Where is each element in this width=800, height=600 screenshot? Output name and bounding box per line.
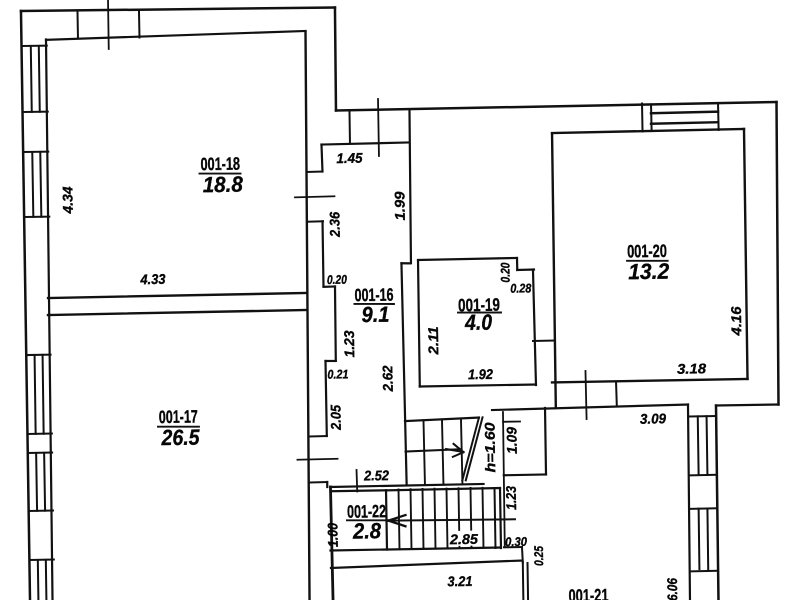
svg-text:4.16: 4.16 xyxy=(728,306,744,337)
svg-text:0.21: 0.21 xyxy=(327,367,348,381)
svg-text:2.11: 2.11 xyxy=(425,326,441,356)
svg-text:4.0: 4.0 xyxy=(464,310,493,335)
svg-text:2.52: 2.52 xyxy=(363,467,389,483)
svg-text:0.28: 0.28 xyxy=(510,281,531,295)
svg-text:6.06: 6.06 xyxy=(664,578,680,600)
svg-text:1.99: 1.99 xyxy=(391,191,407,220)
svg-text:18.8: 18.8 xyxy=(203,172,244,198)
svg-text:2.85: 2.85 xyxy=(449,531,478,547)
svg-text:26.5: 26.5 xyxy=(160,425,200,451)
svg-text:001-21: 001-21 xyxy=(568,585,608,600)
svg-text:0.30: 0.30 xyxy=(505,535,527,549)
svg-text:0.20: 0.20 xyxy=(498,262,512,282)
svg-text:3.18: 3.18 xyxy=(677,360,706,376)
svg-text:1.92: 1.92 xyxy=(468,366,493,382)
svg-text:1.00: 1.00 xyxy=(324,523,340,547)
svg-text:13.2: 13.2 xyxy=(628,259,670,285)
svg-text:1.23: 1.23 xyxy=(341,330,357,357)
svg-text:0.25: 0.25 xyxy=(532,545,546,566)
svg-text:3.09: 3.09 xyxy=(640,410,666,426)
svg-text:2.62: 2.62 xyxy=(379,365,395,392)
svg-text:0.20: 0.20 xyxy=(327,273,347,287)
svg-text:h=1.60: h=1.60 xyxy=(481,422,498,472)
svg-text:2.8: 2.8 xyxy=(352,518,382,543)
svg-text:1.45: 1.45 xyxy=(336,150,362,166)
svg-text:2.05: 2.05 xyxy=(327,405,343,431)
svg-text:2.36: 2.36 xyxy=(326,212,342,238)
svg-text:1.09: 1.09 xyxy=(503,427,519,454)
svg-text:4.34: 4.34 xyxy=(59,186,75,214)
svg-text:4.33: 4.33 xyxy=(139,271,165,287)
svg-text:3.21: 3.21 xyxy=(447,573,472,589)
svg-text:9.1: 9.1 xyxy=(361,302,389,327)
svg-text:1.23: 1.23 xyxy=(503,486,519,510)
